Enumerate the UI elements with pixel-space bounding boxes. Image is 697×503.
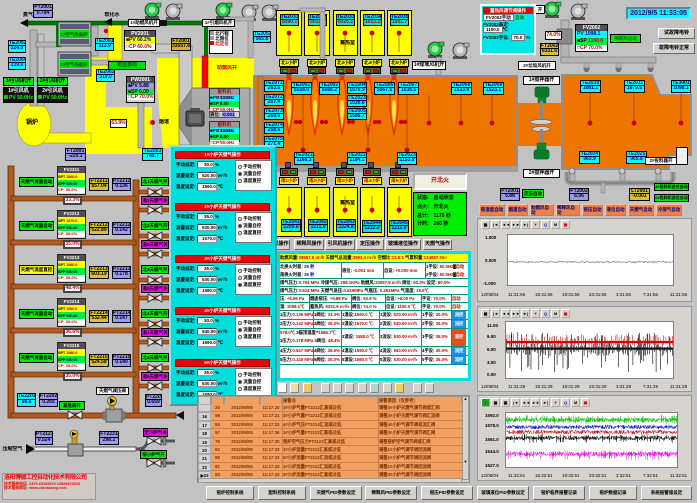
svg-text:3:32:51: 3:32:51 [616,473,632,478]
svg-text:11:32:51: 11:32:51 [670,473,688,478]
svg-text:11:32:51: 11:32:51 [508,473,526,478]
svg-text:7:32:51: 7:32:51 [643,473,659,478]
svg-text:19:32:51: 19:32:51 [562,473,580,478]
svg-text:12/09/04: 12/09/04 [481,473,499,478]
svg-text:15:32:51: 15:32:51 [535,473,553,478]
svg-text:23:32:51: 23:32:51 [589,473,607,478]
